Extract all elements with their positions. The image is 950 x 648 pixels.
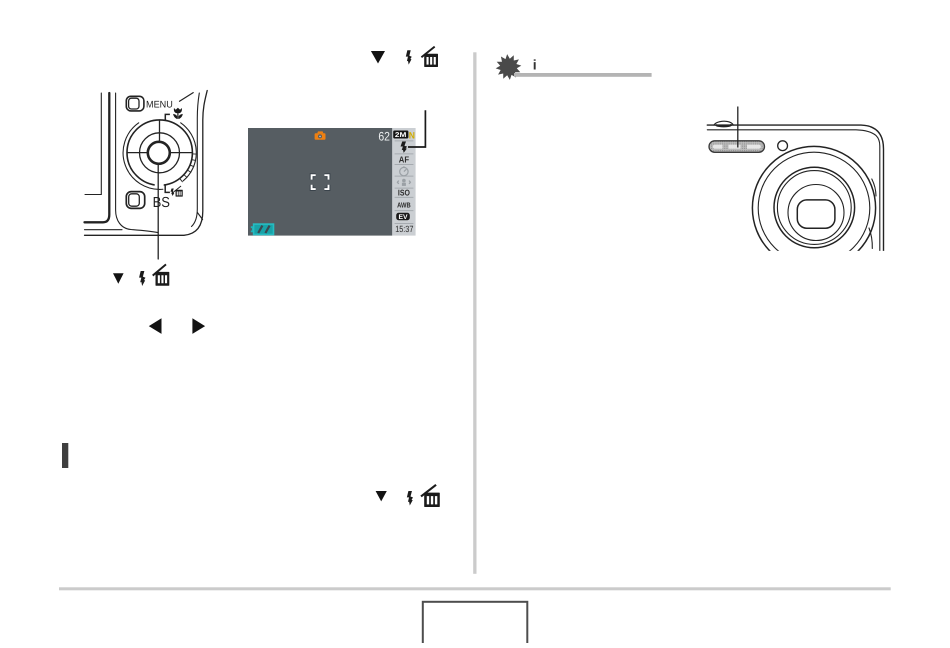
svg-text:ISO: ISO: [398, 188, 410, 198]
svg-text:MENU: MENU: [146, 99, 173, 110]
svg-text:BS: BS: [153, 195, 170, 211]
svg-text:62: 62: [378, 130, 390, 144]
svg-text:EV: EV: [398, 214, 408, 221]
svg-text:N: N: [409, 131, 416, 141]
svg-text:15:37: 15:37: [395, 224, 413, 234]
svg-text:2M: 2M: [395, 132, 407, 139]
svg-text:AWB: AWB: [397, 200, 411, 209]
svg-text:AF: AF: [399, 154, 410, 164]
svg-text:i: i: [533, 56, 537, 72]
